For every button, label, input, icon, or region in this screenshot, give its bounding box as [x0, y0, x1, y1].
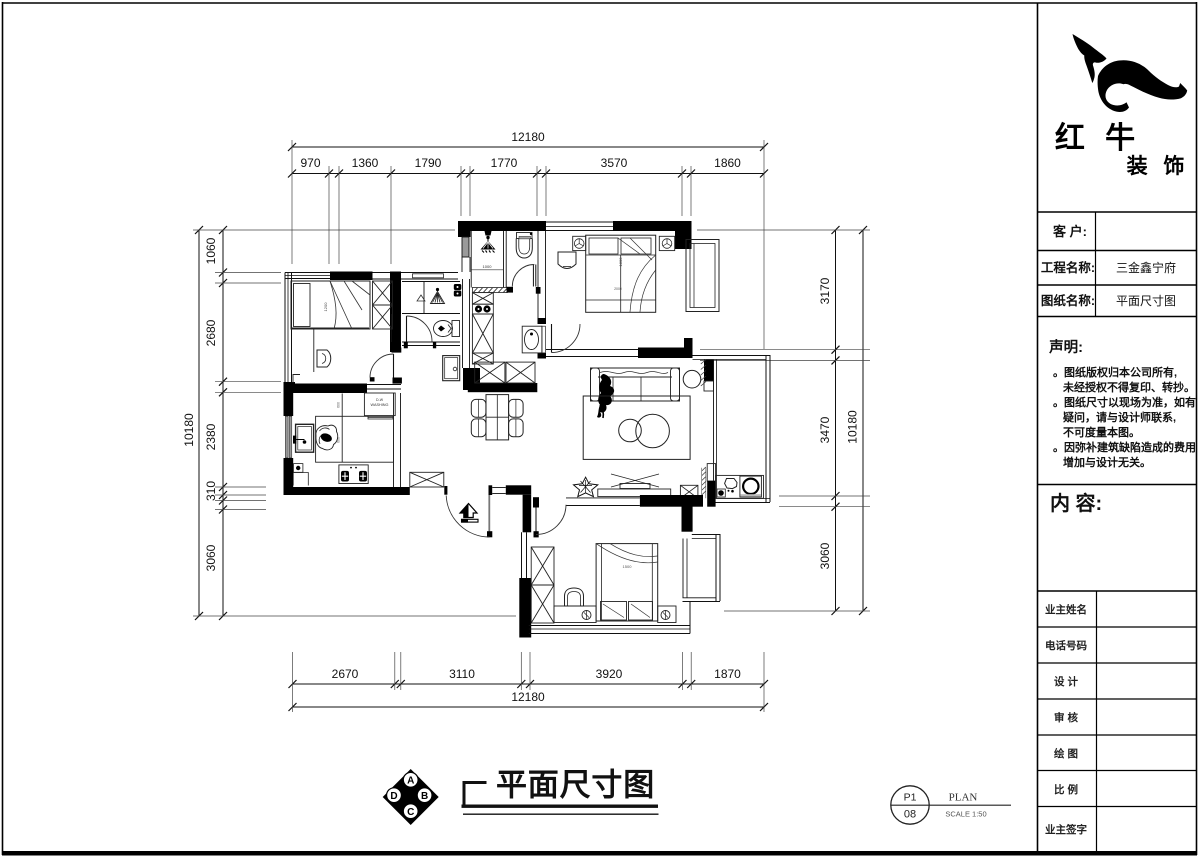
svg-text:增加与设计无关。: 增加与设计无关。 — [1063, 455, 1151, 469]
svg-text:1500: 1500 — [623, 564, 633, 569]
svg-text:C: C — [407, 807, 414, 818]
svg-text:未经授权不得复印、转抄。: 未经授权不得复印、转抄。 — [1062, 380, 1195, 394]
svg-text:装 饰: 装 饰 — [1127, 154, 1190, 178]
svg-text:A: A — [407, 775, 414, 786]
svg-text:1000: 1000 — [483, 264, 493, 269]
svg-text:2680: 2680 — [204, 319, 218, 346]
svg-text:平面尺寸图: 平面尺寸图 — [1116, 294, 1176, 308]
svg-text:图纸名称:: 图纸名称: — [1041, 293, 1095, 308]
svg-text:D: D — [390, 791, 397, 802]
svg-text:比 例: 比 例 — [1054, 783, 1078, 796]
svg-text:声明:: 声明: — [1048, 338, 1083, 356]
svg-text:。因弥补建筑缺陷造成的费用: 。因弥补建筑缺陷造成的费用 — [1053, 440, 1196, 454]
svg-text:SCALE 1:50: SCALE 1:50 — [945, 810, 986, 819]
svg-text:1870: 1870 — [714, 667, 741, 681]
svg-text:电话号码: 电话号码 — [1045, 639, 1087, 652]
svg-text:10180: 10180 — [182, 413, 196, 447]
svg-text:业主姓名: 业主姓名 — [1045, 603, 1087, 616]
svg-text:3060: 3060 — [818, 542, 832, 569]
svg-text:WASHING: WASHING — [371, 403, 389, 407]
svg-text:1790: 1790 — [415, 156, 442, 170]
svg-text:1800: 1800 — [618, 257, 623, 267]
svg-text:内 容:: 内 容: — [1050, 491, 1102, 515]
svg-text:3570: 3570 — [601, 156, 628, 170]
svg-text:1200: 1200 — [323, 302, 328, 312]
svg-text:3060: 3060 — [204, 544, 218, 571]
svg-text:不可度量本图。: 不可度量本图。 — [1063, 425, 1140, 439]
svg-text:2000: 2000 — [614, 287, 622, 291]
svg-text:疑问，请与设计师联系,: 疑问，请与设计师联系, — [1063, 410, 1176, 424]
svg-text:P1: P1 — [904, 792, 917, 804]
svg-text:1860: 1860 — [714, 156, 741, 170]
svg-text:绘 图: 绘 图 — [1054, 747, 1078, 760]
svg-text:三金鑫宁府: 三金鑫宁府 — [1116, 260, 1176, 275]
svg-text:12180: 12180 — [511, 690, 545, 704]
svg-text:PLAN: PLAN — [949, 792, 978, 804]
svg-text:1770: 1770 — [491, 156, 518, 170]
svg-text:10180: 10180 — [846, 410, 860, 444]
svg-text:08: 08 — [904, 809, 916, 821]
svg-text:970: 970 — [300, 156, 320, 170]
svg-text:客 户:: 客 户: — [1053, 224, 1087, 239]
svg-text:工程名称:: 工程名称: — [1041, 260, 1095, 275]
svg-text:B: B — [421, 791, 428, 802]
svg-text:业主签字: 业主签字 — [1045, 823, 1087, 836]
svg-text:600: 600 — [337, 402, 341, 408]
svg-text:3110: 3110 — [449, 667, 475, 681]
svg-text:D-W: D-W — [376, 398, 384, 402]
svg-text:3470: 3470 — [818, 416, 832, 443]
svg-text:3170: 3170 — [818, 277, 832, 304]
svg-text:设 计: 设 计 — [1054, 675, 1078, 688]
svg-text:2670: 2670 — [332, 667, 359, 681]
svg-text:3920: 3920 — [596, 667, 623, 681]
svg-text:平面尺寸图: 平面尺寸图 — [496, 768, 655, 803]
svg-text:审 核: 审 核 — [1054, 711, 1078, 724]
svg-text:1060: 1060 — [204, 237, 218, 264]
svg-text:。图纸尺寸以现场为准，如有: 。图纸尺寸以现场为准，如有 — [1053, 395, 1196, 409]
svg-text:2380: 2380 — [204, 423, 218, 450]
svg-text:。图纸版权归本公司所有,: 。图纸版权归本公司所有, — [1053, 365, 1177, 379]
svg-text:红 牛: 红 牛 — [1055, 122, 1141, 155]
svg-text:12180: 12180 — [511, 130, 545, 144]
svg-text:1360: 1360 — [352, 156, 379, 170]
svg-text:310: 310 — [204, 481, 218, 501]
